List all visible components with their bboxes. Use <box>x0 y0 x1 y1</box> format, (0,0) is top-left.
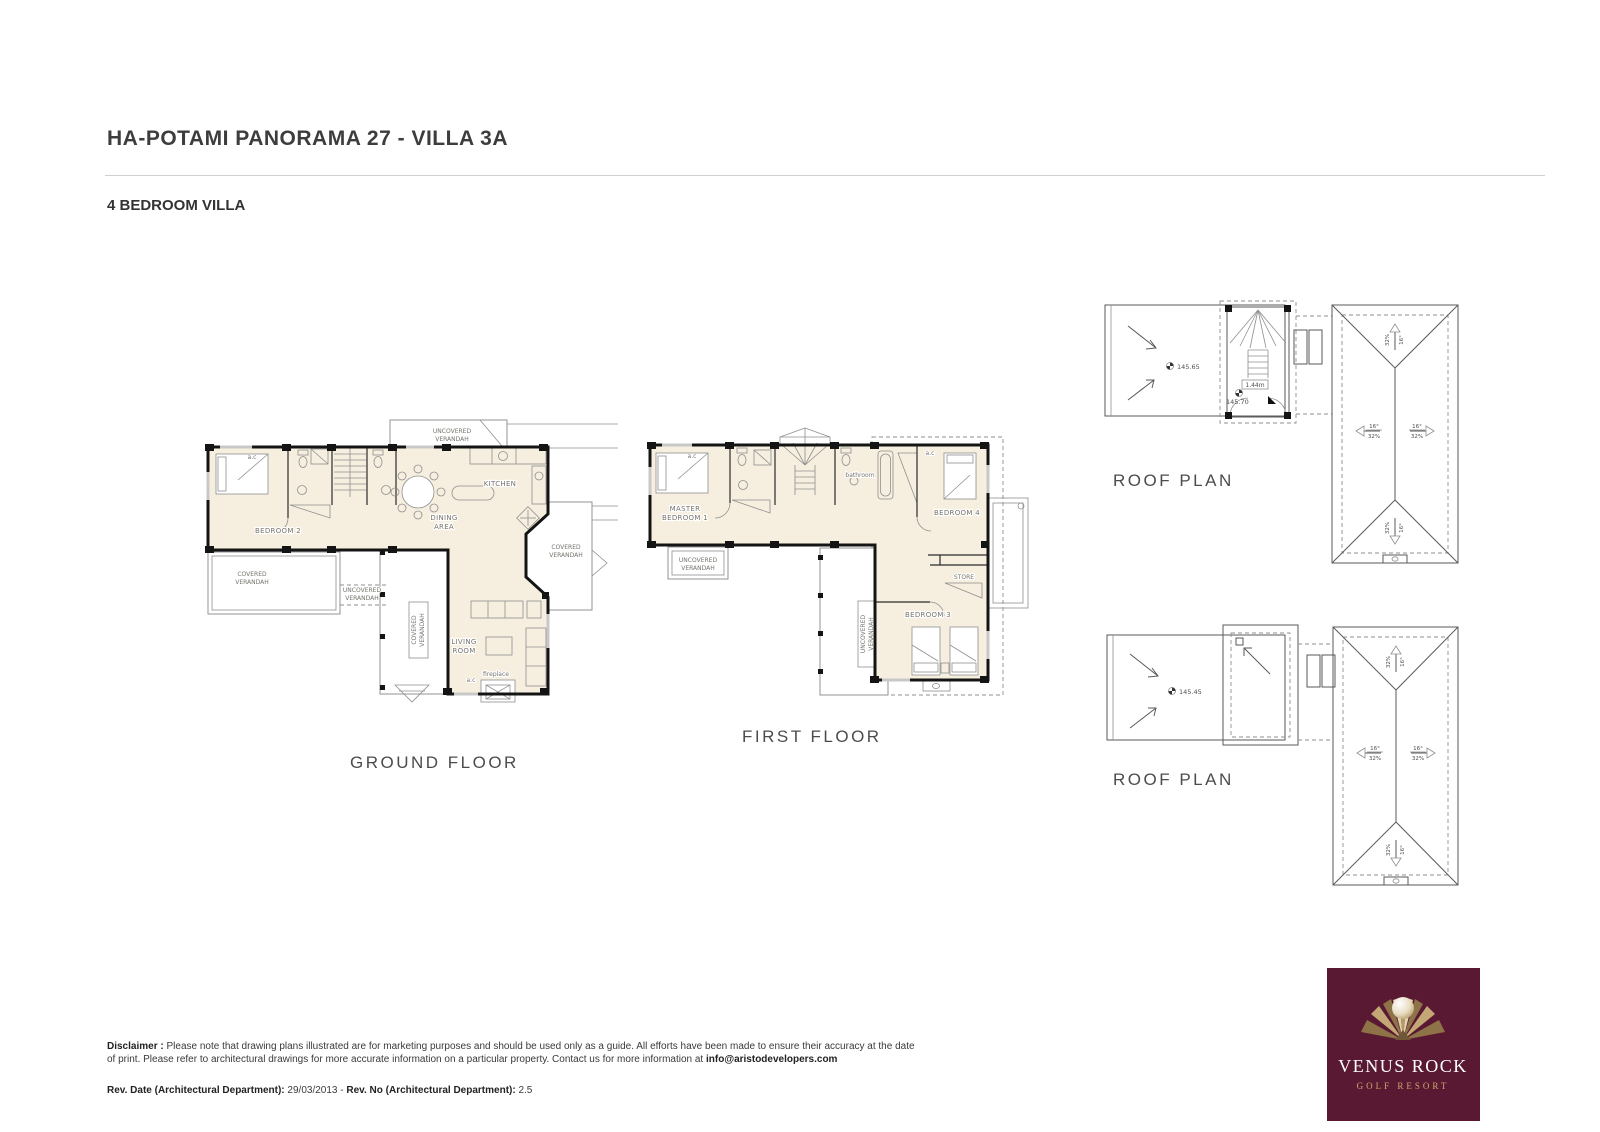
first-floor-plan: UNCOVERED VERANDAH UNCOVERED VERANDAH <box>630 405 1030 710</box>
ru-slope-arrow-left: 16° 32% <box>1356 424 1382 440</box>
ff-store-label: STORE <box>954 574 974 581</box>
gf-dining-label: DINING <box>430 514 457 522</box>
svg-text:16°: 16° <box>1399 335 1405 345</box>
roof-plan-upper: 145.65 <box>1080 288 1470 583</box>
rl-slope-arrow-right: 16° 32% <box>1410 746 1435 762</box>
roof-plan-lower-caption: ROOF PLAN <box>1113 770 1234 790</box>
rl-hip-roof: 32% 16° 32% 16° 16° 32% <box>1333 627 1458 885</box>
first-floor-caption: FIRST FLOOR <box>742 727 882 747</box>
ff-uncovered-verandah-left: UNCOVERED VERANDAH <box>668 547 728 579</box>
ff-bedroom4-bed-icon <box>944 453 976 499</box>
logo-tagline: GOLF RESORT <box>1357 1081 1450 1091</box>
svg-text:VERANDAH: VERANDAH <box>549 552 583 559</box>
gf-bed-icon <box>216 454 268 494</box>
disclaimer-text-2: Please refer to architectural drawings f… <box>143 1054 706 1065</box>
ru-stair-width: 1.44m <box>1245 382 1264 389</box>
svg-text:16°: 16° <box>1412 424 1422 430</box>
gf-uncovered-top-label: UNCOVERED <box>433 428 472 435</box>
venus-rock-logo: VENUS ROCK GOLF RESORT <box>1327 968 1480 1121</box>
ff-master-label: MASTER <box>670 505 701 513</box>
gf-covered-vert-label: COVERED <box>411 615 418 645</box>
ru-pergola-level: 145.65 <box>1177 363 1200 371</box>
svg-text:16°: 16° <box>1369 424 1379 430</box>
svg-text:16°: 16° <box>1400 657 1406 667</box>
svg-text:32%: 32% <box>1386 844 1392 856</box>
svg-text:a.c: a.c <box>467 677 476 684</box>
rl-slope-arrow-top: 32% 16° <box>1386 646 1406 672</box>
rl-pergola: 145.45 <box>1107 635 1285 740</box>
svg-text:32%: 32% <box>1411 434 1423 440</box>
gf-covered-right-label: COVERED <box>551 544 581 551</box>
golf-ball-icon <box>1392 997 1414 1019</box>
ff-balcony <box>988 498 1028 608</box>
disclaimer-email: info@aristodevelopers.com <box>706 1054 837 1065</box>
gf-pergola-strip: COVERED VERANDAH UNCOVERED VERANDAH <box>340 550 448 702</box>
ff-master-bed-icon <box>656 453 708 493</box>
revision-line: Rev. Date (Architectural Department): 29… <box>107 1085 532 1096</box>
header-divider <box>105 175 1545 176</box>
ff-bedroom4-label: BEDROOM 4 <box>934 509 980 517</box>
svg-text:16°: 16° <box>1370 746 1380 752</box>
svg-text:VERANDAH: VERANDAH <box>435 436 469 443</box>
rev-date-value: 29/03/2013 <box>287 1085 337 1096</box>
logo-name: VENUS ROCK <box>1338 1056 1468 1076</box>
ff-uncovered-left-label: UNCOVERED <box>679 557 718 564</box>
rl-slope-arrow-bottom: 32% 16° <box>1386 840 1406 866</box>
ff-uncovered-vert-label: UNCOVERED <box>860 615 867 654</box>
logo-background <box>1327 968 1480 1121</box>
roof-plan-lower: 145.45 <box>1080 592 1470 897</box>
gf-fireplace-label: fireplace <box>483 671 509 678</box>
ff-bathroom-label: bathroom <box>845 472 874 479</box>
ru-chimney <box>1294 330 1322 364</box>
gf-covered-verandah-left: COVERED VERANDAH <box>208 552 340 614</box>
page-title: HA-POTAMI PANORAMA 27 - VILLA 3A <box>107 127 508 151</box>
ground-floor-plan: UNCOVERED VERANDAH COVERED VERANDAH <box>190 402 620 737</box>
svg-text:32%: 32% <box>1412 756 1424 762</box>
rl-pergola-level: 145.45 <box>1179 688 1202 696</box>
rev-no-label: Rev. No (Architectural Department): <box>346 1085 515 1096</box>
svg-text:VERANDAH: VERANDAH <box>681 565 715 572</box>
gf-bedroom2-label: BEDROOM 2 <box>255 527 301 535</box>
ru-pergola: 145.65 <box>1105 305 1285 416</box>
gf-covered-left-label: COVERED <box>237 571 267 578</box>
svg-text:32%: 32% <box>1386 656 1392 668</box>
ru-slope-arrow-bottom: 32% 16° <box>1385 518 1405 544</box>
svg-text:16°: 16° <box>1399 523 1405 533</box>
svg-text:BEDROOM 1: BEDROOM 1 <box>662 514 708 522</box>
svg-text:AREA: AREA <box>434 523 454 531</box>
ff-bedroom3-label: BEDROOM 3 <box>905 611 951 619</box>
document-page: HA-POTAMI PANORAMA 27 - VILLA 3A 4 BEDRO… <box>0 0 1600 1132</box>
rl-slope-arrow-left: 16° 32% <box>1357 746 1383 762</box>
gf-dining-table-icon <box>391 465 445 519</box>
gf-ac-label: a.c <box>248 454 257 461</box>
svg-text:VERANDAH: VERANDAH <box>345 595 379 602</box>
ground-floor-caption: GROUND FLOOR <box>350 753 519 773</box>
gf-fireplace-icon <box>481 680 515 702</box>
svg-text:32%: 32% <box>1385 522 1391 534</box>
svg-text:a.c: a.c <box>926 450 935 457</box>
svg-text:32%: 32% <box>1368 434 1380 440</box>
page-subtitle: 4 BEDROOM VILLA <box>107 197 245 214</box>
rl-chimney <box>1307 655 1335 687</box>
ru-slope-arrow-top: 32% 16° <box>1385 324 1405 350</box>
gf-uncovered-mid-label: UNCOVERED <box>343 587 382 594</box>
gf-kitchen-label: KITCHEN <box>484 480 516 488</box>
rev-no-value: 2.5 <box>518 1085 532 1096</box>
svg-text:16°: 16° <box>1413 746 1423 752</box>
svg-text:32%: 32% <box>1369 756 1381 762</box>
roof-plan-upper-caption: ROOF PLAN <box>1113 471 1234 491</box>
ru-hip-roof: 32% 16° 32% 16° 16° 32% <box>1332 305 1458 563</box>
svg-text:VERANDAH: VERANDAH <box>235 579 269 586</box>
svg-text:VERANDAH: VERANDAH <box>419 613 426 647</box>
ff-ac-label: a.c <box>688 453 697 460</box>
rev-date-label: Rev. Date (Architectural Department): <box>107 1085 285 1096</box>
disclaimer: Disclaimer : Please note that drawing pl… <box>107 1040 917 1066</box>
svg-text:16°: 16° <box>1400 845 1406 855</box>
svg-text:ROOM: ROOM <box>452 647 475 655</box>
svg-text:32%: 32% <box>1385 334 1391 346</box>
ru-landing-level: 145.70 <box>1226 398 1249 406</box>
ru-slope-arrow-right: 16° 32% <box>1409 424 1434 440</box>
disclaimer-label: Disclaimer : <box>107 1041 164 1052</box>
gf-living-label: LIVING <box>451 638 476 646</box>
